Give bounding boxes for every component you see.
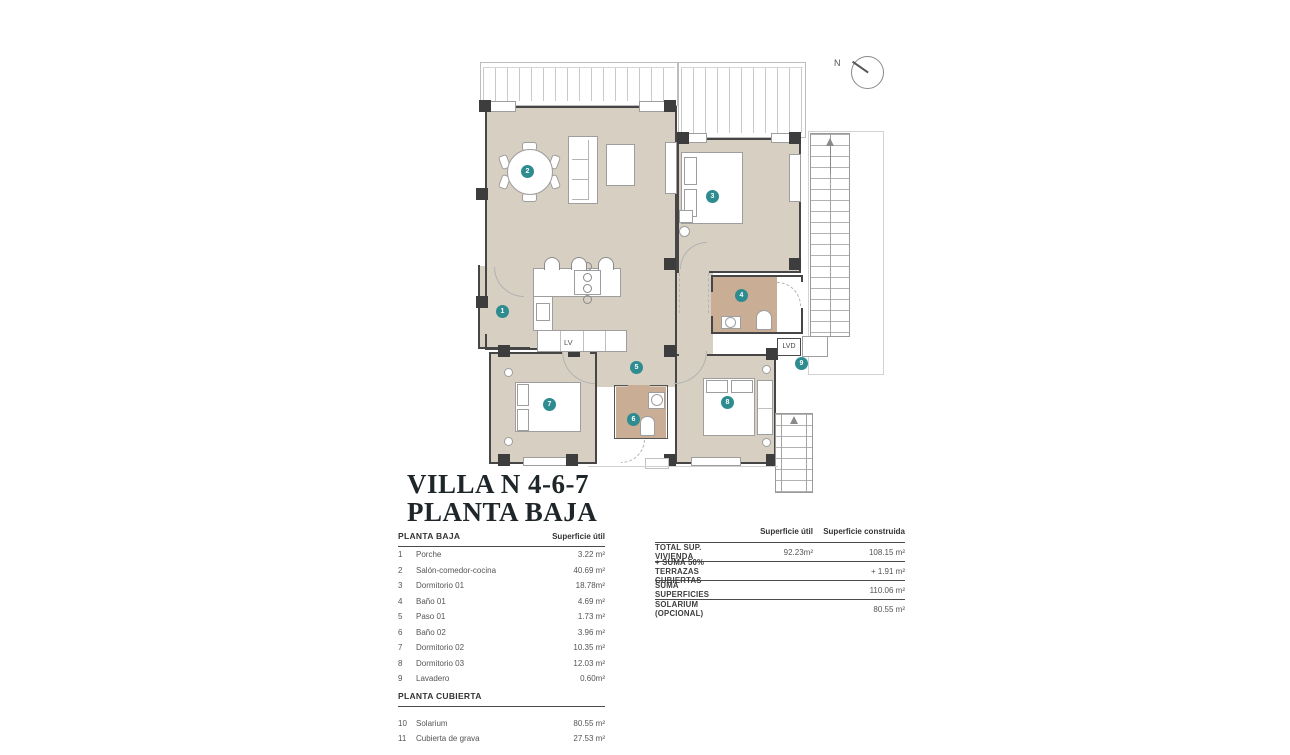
floor-plan: LVD LV [478,60,893,505]
pillow [517,409,529,431]
table-section-title: PLANTA CUBIERTA [398,688,605,707]
table-row: 9Lavadero0.60m² [398,671,605,687]
pergola-right [678,62,806,138]
room-label-3: 3 [706,190,719,203]
door-opening [679,271,709,274]
dishwasher-label: LV [564,338,573,347]
laundry-appliance [802,336,828,357]
wall-lamp-icon [762,438,771,447]
coffee-table [606,144,635,186]
table-section-title: PLANTA BAJA [398,531,460,541]
beam-dashed-line [679,273,680,313]
stair-rail [781,414,782,492]
totals-table: Superficie útil Superficie construida TO… [655,527,905,618]
cooktop-icon [574,270,601,295]
table-row: 3Dormitorio 0118.78m² [398,578,605,594]
table-row: SOLARIUM (OPCIONAL)80.55 m² [655,600,905,618]
window [523,457,569,466]
pillow [731,380,753,393]
areas-table: PLANTA BAJA Superficie útil 1Porche3.22 … [398,531,605,747]
wall-pillar [498,454,510,466]
room-label-2: 2 [521,165,534,178]
window [691,457,741,466]
wall-pillar [476,188,488,200]
staircase-bottom [775,413,813,493]
nightstand-lamp [679,226,690,237]
wardrobe [757,380,773,435]
stair-rail [806,414,807,492]
table-row: + SUMA 50% TERRAZAS CUBIERTAS+ 1.91 m² [655,562,905,581]
room-label-5: 5 [630,361,643,374]
wall-pillar [677,132,689,144]
table-row: SUMA SUPERFICIES110.06 m² [655,581,905,600]
floorplan-page: N [0,0,1290,755]
table-row: 10Solarium80.55 m² [398,716,605,732]
wall-pillar [664,345,676,357]
threshold [645,458,669,469]
table-row: 8Dormitorio 0312.03 m² [398,656,605,672]
kitchen-sink-icon [536,303,550,321]
table-row: 11Cubierta de grava27.53 m² [398,731,605,747]
column-header-superficie-construida: Superficie construida [813,527,905,536]
bar-stool [598,257,614,270]
window [789,154,801,202]
table-row: 5Paso 011.73 m² [398,609,605,625]
bathroom-sink-bowl [725,317,736,328]
door-opening [628,385,650,388]
bathroom-sink-bowl [651,394,663,406]
bar-stool [571,257,587,270]
pillow [706,380,728,393]
sofa [568,136,598,204]
wall-pillar [498,345,510,357]
wall-pillar [664,258,676,270]
room-label-9: 9 [795,357,808,370]
toilet-icon [756,310,772,330]
wall-pillar [476,296,488,308]
wall-pillar [664,100,676,112]
room-label-4: 4 [735,289,748,302]
wall-pillar [479,100,491,112]
beam-dashed-line [708,273,709,313]
table-row: 2Salón-comedor-cocina40.69 m² [398,563,605,579]
table-row: 7Dormitorio 0210.35 m² [398,640,605,656]
table-row: 4Baño 014.69 m² [398,594,605,610]
pillow [517,384,529,406]
wall-lamp-icon [504,368,513,377]
column-header-superficie-util: Superficie útil [731,527,813,536]
room-label-8: 8 [721,396,734,409]
room-label-6: 6 [627,413,640,426]
table-row: 1Porche3.22 m² [398,547,605,563]
laundry-lvd-box: LVD [777,338,801,356]
bar-stool [544,257,560,270]
door-opening [711,292,714,316]
kitchen-cabinet-run: LV [537,330,627,352]
stairs-up-arrow [790,416,798,424]
pergola-left [480,62,678,106]
page-title: VILLA N 4-6-7 PLANTA BAJA [407,470,597,526]
room-label-1: 1 [496,305,509,318]
pillow [684,157,697,185]
room-label-7: 7 [543,398,556,411]
wall-pillar [566,454,578,466]
toilet-icon [640,416,655,436]
door-arc [621,439,645,463]
plot-outline [588,466,778,467]
title-line-2: PLANTA BAJA [407,498,597,526]
wall-pillar [789,258,801,270]
title-line-1: VILLA N 4-6-7 [407,470,597,498]
wall-lamp-icon [504,437,513,446]
column-header-superficie-util: Superficie útil [552,532,605,541]
wall-pillar [789,132,801,144]
window [665,142,677,194]
table-row: 6Baño 023.96 m² [398,625,605,641]
stairs-up-arrow-stem [830,144,831,174]
nightstand [679,210,693,223]
wall-lamp-icon [762,365,771,374]
